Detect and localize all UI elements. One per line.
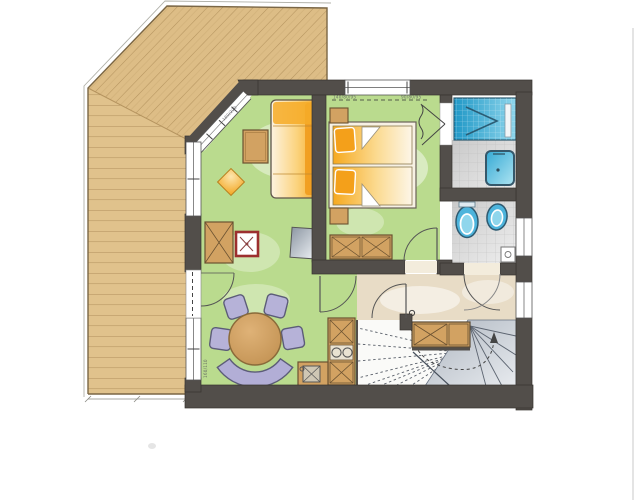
double-bed — [329, 122, 416, 208]
kitchen-column-unit — [328, 318, 355, 385]
wall-right-upper — [516, 92, 532, 218]
dining-table — [229, 313, 281, 365]
wall-left-mid — [185, 214, 201, 272]
wall-wc-hall-left — [440, 263, 464, 275]
stair-cabinet — [412, 322, 470, 349]
dim-label-terrace-window: 160/110 — [203, 359, 208, 378]
coffee-table — [243, 130, 268, 163]
wall-bedroom-hall — [312, 260, 405, 274]
kitchen-sink-unit — [298, 362, 328, 386]
terrace-side-planks — [88, 88, 188, 394]
dining-chair — [263, 293, 288, 318]
dim-label-bedroom-right: 90/80/95 — [401, 95, 422, 100]
window-right-stair — [516, 282, 532, 318]
dresser — [330, 235, 392, 259]
tv-board — [290, 227, 315, 259]
toilet — [456, 202, 478, 238]
wall-wc-hall-right — [500, 263, 516, 275]
pillow — [334, 169, 355, 194]
nightstand — [330, 108, 348, 123]
dim-label-bedroom-left: 140/80/95 — [333, 95, 356, 100]
window-left-lower — [186, 318, 201, 380]
washbasin — [486, 151, 514, 185]
wall-bath-wc — [440, 188, 516, 201]
wood-stove — [236, 232, 258, 256]
floor-plan-page: 140/80/95 90/80/95 180/220 160/110 — [0, 0, 637, 500]
pillow — [334, 127, 356, 152]
dining-chair — [281, 326, 305, 350]
window-right-wc — [516, 218, 532, 256]
window-left-upper — [186, 142, 201, 216]
floor-plan-canvas: 140/80/95 90/80/95 180/220 160/110 — [0, 0, 637, 500]
scan-smudge — [148, 443, 156, 449]
window-top-bedroom — [345, 80, 410, 95]
wall-bath-top-stub — [440, 95, 452, 103]
wall-living-bedroom — [312, 95, 326, 262]
terrace-dimension-line — [85, 396, 189, 402]
wall-top-right — [410, 80, 532, 95]
wall-cabinet — [205, 222, 233, 263]
nightstand — [330, 208, 348, 224]
wall-right-mid — [516, 256, 532, 282]
sofa — [271, 100, 318, 198]
hand-basin — [501, 247, 515, 262]
shower-door-bar — [505, 104, 511, 137]
wall-bottom — [185, 385, 533, 408]
toilet-cistern — [459, 202, 475, 207]
shower — [454, 98, 516, 140]
